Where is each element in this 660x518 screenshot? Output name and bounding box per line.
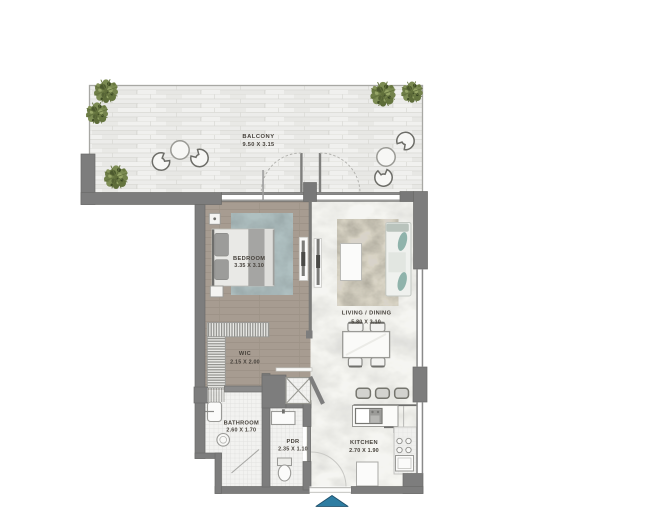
svg-text:BATHROOM: BATHROOM <box>224 421 259 427</box>
svg-text:5.80 X 3.10: 5.80 X 3.10 <box>351 319 381 325</box>
svg-text:3.35 X 3.10: 3.35 X 3.10 <box>234 263 264 269</box>
svg-text:2.70 X 1.90: 2.70 X 1.90 <box>349 448 379 454</box>
svg-text:BEDROOM: BEDROOM <box>233 256 266 262</box>
svg-text:9.50 X 3.15: 9.50 X 3.15 <box>243 142 275 148</box>
svg-text:2.60 X 1.70: 2.60 X 1.70 <box>226 428 256 434</box>
svg-text:2.35 X 1.10: 2.35 X 1.10 <box>278 447 308 453</box>
svg-text:WIC: WIC <box>239 351 251 357</box>
svg-text:LIVING / DINING: LIVING / DINING <box>342 311 392 317</box>
svg-text:BALCONY: BALCONY <box>242 134 274 140</box>
svg-text:PDR: PDR <box>287 439 300 445</box>
svg-text:KITCHEN: KITCHEN <box>350 440 378 446</box>
svg-text:2.15 X 2.00: 2.15 X 2.00 <box>230 360 260 366</box>
